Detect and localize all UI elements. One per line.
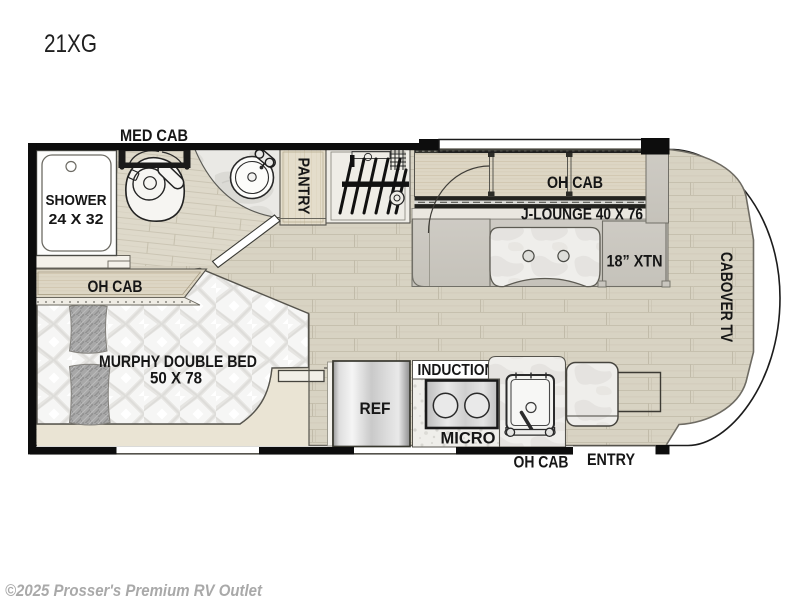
svg-text:21XG: 21XG xyxy=(44,30,97,58)
svg-text:REF: REF xyxy=(360,399,391,418)
svg-text:MED CAB: MED CAB xyxy=(120,127,188,145)
svg-text:CABOVER TV: CABOVER TV xyxy=(717,252,736,343)
svg-text:PANTRY: PANTRY xyxy=(295,158,312,216)
svg-text:OH CAB: OH CAB xyxy=(88,278,143,296)
svg-text:SHOWER: SHOWER xyxy=(46,192,107,209)
svg-text:©2025 Prosser's Premium RV Out: ©2025 Prosser's Premium RV Outlet xyxy=(5,581,263,600)
svg-text:OH CAB: OH CAB xyxy=(547,174,603,192)
svg-text:OH CAB: OH CAB xyxy=(514,454,569,472)
svg-text:24 X 32: 24 X 32 xyxy=(49,211,104,228)
svg-text:ENTRY: ENTRY xyxy=(587,451,635,469)
svg-text:18” XTN: 18” XTN xyxy=(607,253,663,271)
svg-text:50 X 78: 50 X 78 xyxy=(150,370,202,388)
svg-text:MURPHY DOUBLE BED: MURPHY DOUBLE BED xyxy=(99,353,257,371)
svg-text:INDUCTION: INDUCTION xyxy=(418,362,495,379)
svg-text:MICRO: MICRO xyxy=(441,430,496,448)
